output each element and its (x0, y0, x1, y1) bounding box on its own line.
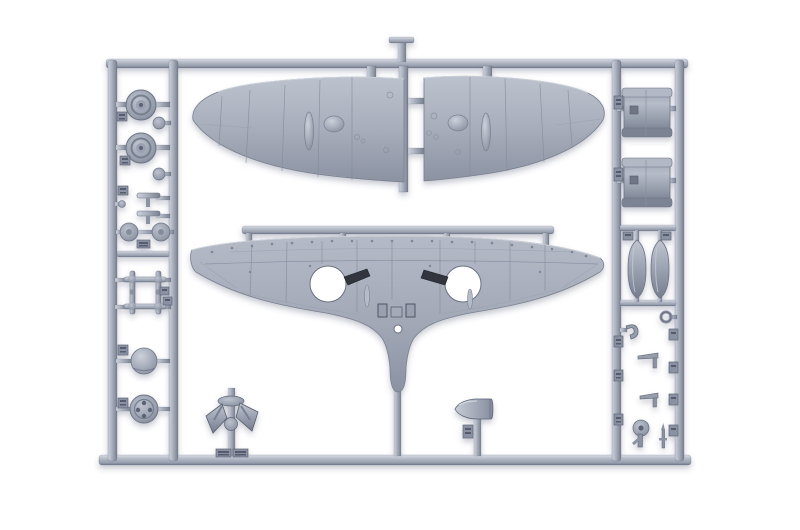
part-number-tag (160, 287, 169, 295)
teardrop-fairing-2 (651, 230, 669, 302)
part-number-tag (216, 449, 231, 457)
wheel-well-opening (310, 266, 346, 302)
part-number-tag (669, 394, 678, 405)
part-number-tag (118, 186, 128, 195)
part-number-tag (661, 232, 671, 240)
left-inner-rail (169, 60, 178, 461)
part-number-tag (117, 112, 127, 121)
part-number-tag (118, 398, 128, 408)
spinner-stem (474, 416, 481, 456)
part-number-tag (614, 414, 623, 425)
middle-runner (242, 226, 554, 234)
upper-wing-half-right (408, 76, 604, 181)
part-number-tag (463, 425, 473, 438)
sprue-illustration (0, 0, 800, 530)
part-number-tag (137, 240, 150, 248)
radiator-drum-2 (617, 158, 676, 207)
right-rung (620, 225, 676, 231)
teardrop-fairing-1 (628, 230, 646, 302)
part-number-tag (614, 370, 623, 381)
wing-blister (482, 113, 491, 151)
right-rung (620, 300, 676, 306)
radiator-drum-1 (617, 88, 676, 137)
part-number-tag (614, 96, 623, 109)
part-number-tag (669, 362, 678, 373)
belly-stem (394, 390, 401, 456)
axle-small-parts (115, 193, 170, 224)
lever-part-2 (640, 393, 658, 407)
part-number-tag (669, 329, 678, 340)
upper-wing-half-left (193, 77, 404, 182)
hub-disc-pair (116, 223, 174, 241)
part-number-tag (614, 168, 623, 181)
wing-blister (448, 115, 468, 131)
propeller-blade (206, 404, 227, 433)
small-ring (661, 312, 677, 322)
top-rail (106, 59, 688, 68)
wing-blister (324, 116, 344, 132)
part-number-tag (233, 449, 248, 457)
part-number-tag (120, 156, 130, 165)
sprue-photo (0, 0, 800, 530)
part-number-tag (118, 345, 128, 355)
wing-blister (305, 112, 314, 150)
lever-part-1 (638, 353, 658, 368)
lower-wing-one-piece (191, 236, 604, 392)
part-number-tag (669, 425, 678, 436)
part-number-tag (163, 297, 172, 305)
pitot-tube (659, 423, 667, 448)
center-hole (394, 325, 402, 333)
left-outer-rail (108, 60, 117, 461)
wheel-well-opening (445, 266, 481, 302)
tail-wheel (633, 420, 649, 447)
bottom-rail (99, 455, 691, 465)
part-number-tag (623, 232, 633, 240)
right-inner-rail (612, 60, 621, 461)
part-number-tag (614, 336, 623, 347)
top-gate-cap (389, 37, 414, 43)
left-rung (117, 251, 169, 257)
